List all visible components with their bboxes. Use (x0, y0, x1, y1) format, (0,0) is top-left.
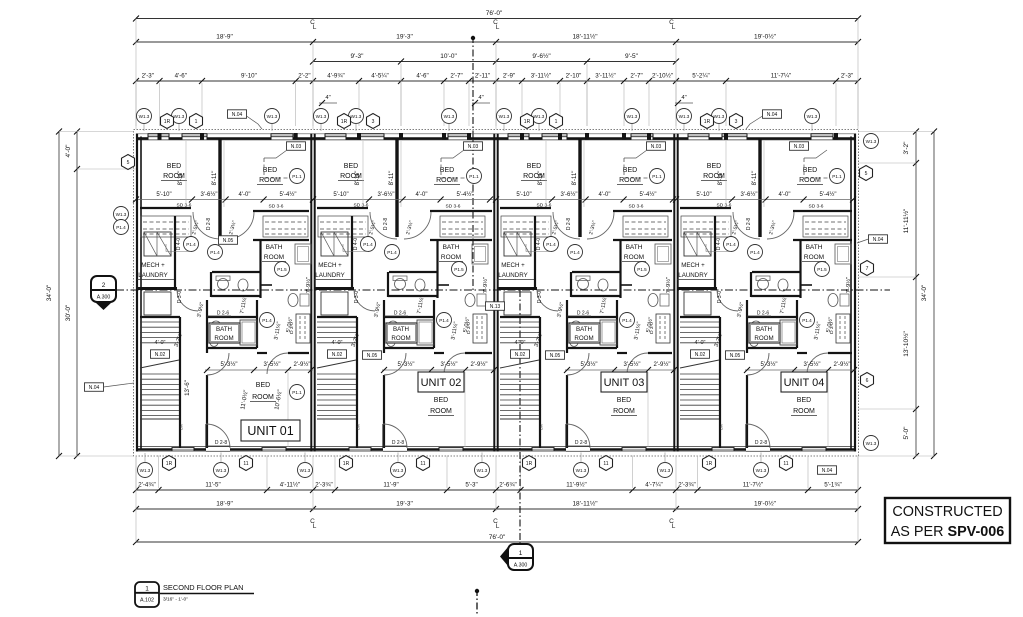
svg-text:34'-0": 34'-0" (921, 284, 928, 301)
svg-text:2'-4¾": 2'-4¾" (138, 482, 155, 489)
svg-text:2'-3¾": 2'-3¾" (678, 482, 695, 489)
svg-text:W1.3: W1.3 (714, 114, 725, 119)
svg-text:N.03: N.03 (468, 144, 479, 150)
svg-text:D 4-0: D 4-0 (716, 238, 722, 250)
svg-text:A.300: A.300 (514, 563, 528, 569)
svg-text:D 3-0: D 3-0 (466, 322, 472, 334)
svg-text:P1.4: P1.4 (750, 250, 760, 255)
svg-text:D 4-0: D 4-0 (353, 238, 359, 250)
svg-text:L: L (672, 523, 676, 530)
svg-text:11'-5": 11'-5" (205, 482, 220, 489)
svg-text:8'-11": 8'-11" (355, 171, 361, 186)
svg-text:4'-0": 4'-0" (416, 192, 428, 198)
svg-text:7'-11½": 7'-11½" (415, 295, 425, 314)
svg-text:N.04: N.04 (767, 112, 778, 118)
svg-text:11'-7¼": 11'-7¼" (771, 73, 791, 80)
svg-text:4'-7¼": 4'-7¼" (645, 482, 662, 489)
svg-text:5'-3½": 5'-3½" (221, 361, 238, 368)
svg-text:P1.1: P1.1 (832, 174, 842, 179)
svg-text:3'-5½": 3'-5½" (441, 361, 458, 368)
svg-text:1R: 1R (341, 119, 348, 125)
svg-text:1R: 1R (526, 461, 533, 467)
svg-text:A.102: A.102 (140, 598, 154, 604)
svg-text:SD 3-6: SD 3-6 (177, 203, 192, 209)
svg-text:13'-6": 13'-6" (184, 380, 191, 396)
svg-text:BATH: BATH (393, 326, 409, 333)
svg-text:MECH +: MECH + (141, 262, 165, 269)
svg-text:2'-7": 2'-7" (450, 73, 462, 80)
svg-text:1R: 1R (164, 119, 171, 125)
svg-text:34'-0": 34'-0" (46, 284, 53, 301)
svg-text:5'-1¾": 5'-1¾" (824, 482, 841, 489)
svg-text:9'-5": 9'-5" (625, 53, 639, 60)
svg-text:D 2-8: D 2-8 (575, 440, 587, 446)
svg-text:DN: DN (720, 424, 724, 430)
svg-text:P1.4: P1.4 (116, 225, 126, 230)
svg-text:5'-10": 5'-10" (516, 192, 531, 198)
svg-text:5'-3½": 5'-3½" (398, 361, 415, 368)
svg-text:W1.3: W1.3 (866, 441, 877, 446)
svg-text:P1.4: P1.4 (802, 318, 812, 323)
svg-text:4'-0": 4'-0" (65, 144, 72, 158)
svg-text:N.02: N.02 (695, 352, 706, 358)
svg-text:P1.4: P1.4 (726, 242, 736, 247)
svg-text:3'-11½": 3'-11½" (812, 321, 822, 340)
svg-text:2'-5¼": 2'-5¼" (191, 220, 201, 235)
svg-text:4'-5¼": 4'-5¼" (371, 73, 388, 80)
svg-text:P1.4: P1.4 (262, 318, 272, 323)
svg-text:3'-11½": 3'-11½" (595, 73, 615, 80)
svg-text:BED: BED (617, 397, 631, 404)
svg-text:8'-11": 8'-11" (752, 171, 758, 186)
svg-text:P1.1: P1.1 (469, 174, 479, 179)
svg-text:2'-9": 2'-9" (503, 73, 515, 80)
svg-text:P1.5: P1.5 (817, 267, 827, 272)
svg-text:W1.3: W1.3 (393, 468, 404, 473)
svg-text:3'-11½": 3'-11½" (272, 321, 282, 340)
svg-text:4'-6": 4'-6" (416, 73, 428, 80)
svg-text:BATH: BATH (216, 326, 232, 333)
svg-text:1R: 1R (166, 461, 173, 467)
svg-text:5'-10": 5'-10" (156, 192, 171, 198)
svg-text:2'-3": 2'-3" (142, 73, 154, 80)
svg-text:W1.3: W1.3 (267, 114, 278, 119)
svg-text:DN: DN (540, 424, 544, 430)
svg-text:N.02: N.02 (332, 352, 343, 358)
svg-text:11: 11 (243, 461, 248, 467)
svg-text:BED: BED (263, 167, 277, 174)
svg-text:6: 6 (866, 378, 869, 384)
svg-text:UNIT 03: UNIT 03 (604, 377, 645, 389)
svg-text:3'-5½": 3'-5½" (804, 361, 821, 368)
svg-text:5'-10": 5'-10" (333, 192, 348, 198)
svg-text:4'-6": 4'-6" (175, 73, 187, 80)
svg-text:BED: BED (707, 163, 721, 170)
svg-text:4": 4" (478, 95, 483, 101)
svg-text:19'-3": 19'-3" (396, 34, 413, 41)
svg-text:D 2-8: D 2-8 (215, 440, 227, 446)
svg-text:W1.3: W1.3 (116, 212, 127, 217)
svg-text:7'-9½": 7'-9½" (845, 277, 852, 293)
svg-text:ROOM: ROOM (804, 254, 824, 261)
svg-text:BED: BED (803, 167, 817, 174)
svg-text:3'-2½": 3'-2½" (173, 331, 185, 348)
svg-text:BATH: BATH (443, 244, 460, 251)
svg-text:BED: BED (797, 397, 811, 404)
svg-text:7'-11½": 7'-11½" (598, 295, 608, 314)
svg-text:D 2-8: D 2-8 (383, 218, 389, 230)
svg-text:2'-9½": 2'-9½" (654, 361, 671, 368)
svg-text:ROOM: ROOM (214, 335, 233, 342)
svg-text:ROOM: ROOM (613, 408, 635, 415)
svg-text:3'-9½": 3'-9½" (555, 301, 565, 318)
svg-text:2'-3¾": 2'-3¾" (315, 482, 332, 489)
svg-text:11'-9": 11'-9" (383, 482, 398, 489)
svg-text:N.02: N.02 (155, 352, 166, 358)
svg-text:19'-3": 19'-3" (396, 501, 413, 508)
svg-text:3/16" - 1'-0": 3/16" - 1'-0" (163, 597, 188, 603)
svg-text:P1.1: P1.1 (292, 390, 302, 395)
svg-text:D 3-0: D 3-0 (829, 322, 835, 334)
svg-text:P1.1: P1.1 (292, 174, 302, 179)
svg-text:11'-9½": 11'-9½" (566, 482, 586, 489)
svg-text:N.04: N.04 (873, 237, 884, 243)
svg-text:P1.5: P1.5 (637, 267, 647, 272)
svg-text:W1.3: W1.3 (444, 114, 455, 119)
svg-text:8'-11": 8'-11" (389, 171, 395, 186)
svg-text:11: 11 (420, 461, 425, 467)
svg-text:4'-0": 4'-0" (779, 192, 791, 198)
svg-text:3: 3 (735, 119, 738, 125)
svg-text:N.03: N.03 (291, 144, 302, 150)
svg-text:SD 3-6: SD 3-6 (446, 204, 461, 210)
svg-text:11: 11 (603, 461, 608, 467)
svg-text:3'-9½": 3'-9½" (195, 301, 205, 318)
svg-text:P1.4: P1.4 (363, 242, 373, 247)
svg-text:W1.3: W1.3 (216, 468, 227, 473)
svg-text:W1.3: W1.3 (174, 114, 185, 119)
svg-text:1R: 1R (706, 461, 713, 467)
svg-text:5'-4½": 5'-4½" (640, 191, 657, 198)
svg-text:N.04: N.04 (822, 468, 833, 474)
svg-text:9'-3": 9'-3" (351, 53, 365, 60)
svg-text:4": 4" (325, 95, 330, 101)
svg-text:DN: DN (357, 424, 361, 430)
svg-text:W1.3: W1.3 (866, 139, 877, 144)
svg-text:N.05: N.05 (367, 353, 378, 359)
svg-text:W1.3: W1.3 (756, 468, 767, 473)
svg-text:76'-0": 76'-0" (486, 10, 503, 17)
svg-text:3'-6½": 3'-6½" (378, 191, 395, 198)
svg-text:SD 3-6: SD 3-6 (809, 204, 824, 210)
svg-text:ROOM: ROOM (793, 408, 815, 415)
svg-text:13'-10½": 13'-10½" (902, 331, 910, 357)
svg-text:L: L (496, 24, 500, 31)
svg-text:MECH +: MECH + (501, 262, 525, 269)
svg-text:P1.4: P1.4 (622, 318, 632, 323)
svg-text:LAUNDRY: LAUNDRY (678, 272, 707, 279)
svg-text:ROOM: ROOM (574, 335, 593, 342)
svg-text:N.03: N.03 (651, 144, 662, 150)
svg-text:P1.5: P1.5 (277, 267, 287, 272)
svg-text:2'-2": 2'-2" (298, 73, 310, 80)
svg-text:W1.3: W1.3 (807, 114, 818, 119)
svg-text:2'-3½": 2'-3½" (227, 220, 237, 236)
svg-text:SD 3-6: SD 3-6 (717, 203, 732, 209)
svg-text:2'-9½": 2'-9½" (834, 361, 851, 368)
svg-text:BED: BED (434, 397, 448, 404)
svg-text:2'-7": 2'-7" (630, 73, 642, 80)
svg-text:2'-3½": 2'-3½" (404, 220, 414, 236)
svg-text:P1.5: P1.5 (454, 267, 464, 272)
svg-text:1: 1 (519, 550, 523, 557)
svg-text:1R: 1R (343, 461, 350, 467)
svg-text:A.300: A.300 (97, 295, 111, 301)
svg-text:W1.3: W1.3 (316, 114, 327, 119)
svg-text:BED: BED (256, 382, 270, 389)
svg-text:BATH: BATH (756, 326, 772, 333)
svg-text:ROOM: ROOM (264, 254, 284, 261)
svg-text:L: L (672, 24, 676, 31)
svg-text:W1.3: W1.3 (140, 468, 151, 473)
svg-text:2'-3½": 2'-3½" (767, 220, 777, 236)
svg-text:3'-2½": 3'-2½" (350, 331, 362, 348)
svg-text:3'-5½": 3'-5½" (264, 361, 281, 368)
svg-text:W1.3: W1.3 (477, 468, 488, 473)
svg-text:D 3-0: D 3-0 (717, 291, 723, 303)
svg-text:P1.4: P1.4 (570, 250, 580, 255)
svg-text:N.05: N.05 (223, 238, 234, 244)
svg-text:P1.1: P1.1 (652, 174, 662, 179)
svg-text:1R: 1R (704, 119, 711, 125)
svg-text:2'-5¼": 2'-5¼" (731, 220, 741, 235)
svg-text:18'-9": 18'-9" (216, 34, 233, 41)
svg-text:18'-11½": 18'-11½" (572, 33, 598, 41)
svg-text:3'-6½": 3'-6½" (741, 191, 758, 198)
svg-text:2: 2 (102, 282, 106, 289)
svg-text:4'-11½": 4'-11½" (280, 482, 300, 489)
svg-text:11'-11½": 11'-11½" (902, 208, 910, 233)
svg-text:7'-9½": 7'-9½" (305, 277, 312, 293)
svg-text:UNIT 04: UNIT 04 (784, 377, 825, 389)
svg-text:D 3-0: D 3-0 (354, 291, 360, 303)
svg-text:1: 1 (195, 119, 198, 125)
svg-text:3'-11½": 3'-11½" (632, 321, 642, 340)
svg-text:8'-11": 8'-11" (212, 171, 218, 186)
svg-text:W1.3: W1.3 (679, 114, 690, 119)
svg-text:LAUNDRY: LAUNDRY (498, 272, 527, 279)
svg-text:L: L (313, 523, 317, 530)
svg-text:4'-0": 4'-0" (695, 340, 706, 346)
svg-text:1R: 1R (524, 119, 531, 125)
svg-text:3'-11½": 3'-11½" (449, 321, 459, 340)
svg-text:10'-0": 10'-0" (440, 53, 457, 60)
svg-text:11'-0½": 11'-0½" (239, 389, 249, 410)
svg-text:L: L (496, 523, 500, 530)
svg-text:5'-4½": 5'-4½" (280, 191, 297, 198)
svg-text:5'-3": 5'-3" (465, 482, 477, 489)
svg-text:2'-10½": 2'-10½" (652, 73, 673, 80)
svg-text:N.03: N.03 (794, 144, 805, 150)
svg-text:4'-0": 4'-0" (155, 340, 166, 346)
svg-text:3'-9½": 3'-9½" (735, 301, 745, 318)
svg-text:4'-9¾": 4'-9¾" (327, 73, 344, 80)
svg-text:SD 3-6: SD 3-6 (354, 203, 369, 209)
svg-text:2'-9½": 2'-9½" (294, 361, 311, 368)
svg-text:11: 11 (783, 461, 788, 467)
svg-text:5: 5 (865, 171, 868, 177)
svg-text:2'-6¾": 2'-6¾" (499, 482, 516, 489)
svg-text:9'-6½": 9'-6½" (532, 52, 551, 60)
svg-text:4'-0": 4'-0" (515, 340, 526, 346)
svg-text:N.04: N.04 (89, 385, 100, 391)
svg-text:D 2-8: D 2-8 (746, 218, 752, 230)
svg-text:ROOM: ROOM (624, 254, 644, 261)
svg-text:4'-0": 4'-0" (332, 340, 343, 346)
svg-text:W1.3: W1.3 (534, 114, 545, 119)
svg-text:2'-3": 2'-3" (841, 73, 853, 80)
svg-text:SECOND FLOOR PLAN: SECOND FLOOR PLAN (163, 583, 244, 592)
svg-text:3'-9½": 3'-9½" (372, 301, 382, 318)
svg-text:7'-9½": 7'-9½" (665, 277, 672, 293)
svg-text:UNIT 01: UNIT 01 (247, 424, 293, 438)
svg-text:3'-5½": 3'-5½" (624, 361, 641, 368)
svg-text:7'-11½": 7'-11½" (238, 295, 248, 314)
svg-text:5'-2¼": 5'-2¼" (692, 73, 709, 80)
svg-text:LAUNDRY: LAUNDRY (138, 272, 167, 279)
svg-text:D 3-0: D 3-0 (649, 322, 655, 334)
svg-text:5'-3½": 5'-3½" (761, 361, 778, 368)
svg-text:8'-11": 8'-11" (178, 171, 184, 186)
svg-text:7'-11½": 7'-11½" (778, 295, 788, 314)
svg-text:BED: BED (527, 163, 541, 170)
svg-text:2'-5¼": 2'-5¼" (551, 220, 561, 235)
svg-text:W1.3: W1.3 (576, 468, 587, 473)
svg-text:MECH +: MECH + (318, 262, 342, 269)
svg-text:2'-5¼": 2'-5¼" (368, 220, 378, 235)
svg-text:19'-0½": 19'-0½" (754, 500, 777, 508)
svg-text:76'-0": 76'-0" (489, 534, 506, 541)
svg-text:3'-2½": 3'-2½" (533, 331, 545, 348)
svg-text:W1.3: W1.3 (660, 468, 671, 473)
svg-text:MECH +: MECH + (681, 262, 705, 269)
svg-text:7: 7 (866, 266, 869, 272)
svg-text:19'-0½": 19'-0½" (754, 33, 777, 41)
svg-text:ROOM: ROOM (441, 254, 461, 261)
svg-text:BATH: BATH (266, 244, 283, 251)
svg-text:D 2-8: D 2-8 (755, 440, 767, 446)
svg-text:ROOM: ROOM (430, 408, 452, 415)
svg-text:3'-2": 3'-2" (903, 141, 910, 155)
svg-text:2'-10": 2'-10" (566, 73, 582, 80)
svg-text:BED: BED (623, 167, 637, 174)
svg-text:5'-10": 5'-10" (696, 192, 711, 198)
svg-text:BATH: BATH (626, 244, 643, 251)
svg-text:W1.3: W1.3 (627, 114, 638, 119)
svg-text:SD 3-6: SD 3-6 (269, 204, 284, 210)
svg-text:4": 4" (681, 95, 686, 101)
svg-text:BED: BED (167, 163, 181, 170)
svg-text:W1.3: W1.3 (139, 114, 150, 119)
svg-text:N.05: N.05 (550, 353, 561, 359)
svg-text:L: L (313, 24, 317, 31)
svg-text:BED: BED (344, 163, 358, 170)
svg-text:8'-11": 8'-11" (718, 171, 724, 186)
svg-text:3'-6½": 3'-6½" (201, 191, 218, 198)
svg-text:P1.4: P1.4 (439, 318, 449, 323)
svg-text:LAUNDRY: LAUNDRY (315, 272, 344, 279)
svg-text:N.02: N.02 (515, 352, 526, 358)
svg-text:11'-7½": 11'-7½" (743, 482, 763, 489)
svg-text:7'-9½": 7'-9½" (482, 277, 489, 293)
svg-text:AS PER SPV-006: AS PER SPV-006 (891, 524, 1005, 540)
svg-text:SD 3-6: SD 3-6 (537, 203, 552, 209)
svg-text:N.13: N.13 (490, 304, 501, 310)
svg-text:UNIT 02: UNIT 02 (421, 377, 462, 389)
svg-text:D 4-0: D 4-0 (176, 238, 182, 250)
svg-text:2'-11": 2'-11" (475, 73, 490, 80)
svg-text:W1.3: W1.3 (351, 114, 362, 119)
svg-text:ROOM: ROOM (391, 335, 410, 342)
svg-text:3'-2½": 3'-2½" (713, 331, 725, 348)
svg-text:3'-11½": 3'-11½" (531, 73, 551, 80)
svg-text:D 3-0: D 3-0 (537, 291, 543, 303)
svg-text:BED: BED (440, 167, 454, 174)
svg-text:D 4-0: D 4-0 (536, 238, 542, 250)
svg-text:5'-4½": 5'-4½" (820, 191, 837, 198)
svg-text:18'-9": 18'-9" (216, 501, 233, 508)
svg-text:BATH: BATH (806, 244, 823, 251)
svg-text:4'-0": 4'-0" (599, 192, 611, 198)
svg-text:D 2-8: D 2-8 (206, 218, 212, 230)
svg-text:W1.3: W1.3 (499, 114, 510, 119)
svg-text:1: 1 (555, 119, 558, 125)
svg-text:8'-11": 8'-11" (572, 171, 578, 186)
svg-text:5'-0": 5'-0" (903, 426, 910, 440)
svg-text:3'-6½": 3'-6½" (561, 191, 578, 198)
svg-text:W1.3: W1.3 (300, 468, 311, 473)
svg-text:ROOM: ROOM (754, 335, 773, 342)
svg-text:P1.4: P1.4 (546, 242, 556, 247)
svg-text:D 3-0: D 3-0 (177, 291, 183, 303)
svg-text:P1.4: P1.4 (210, 250, 220, 255)
svg-text:3: 3 (372, 119, 375, 125)
svg-text:8'-11": 8'-11" (538, 171, 544, 186)
svg-text:N.04: N.04 (232, 112, 243, 118)
svg-text:CONSTRUCTED: CONSTRUCTED (892, 504, 1002, 520)
svg-text:1: 1 (145, 586, 149, 593)
svg-text:D 3-0: D 3-0 (289, 322, 295, 334)
svg-text:DN: DN (180, 424, 184, 430)
svg-text:P1.4: P1.4 (186, 242, 196, 247)
svg-text:5'-3½": 5'-3½" (581, 361, 598, 368)
svg-text:5: 5 (127, 160, 130, 166)
svg-text:5'-4½": 5'-4½" (457, 191, 474, 198)
svg-text:D 2-8: D 2-8 (566, 218, 572, 230)
svg-text:2'-3½": 2'-3½" (587, 220, 597, 236)
svg-text:9'-10": 9'-10" (241, 73, 257, 80)
svg-text:10'-6½": 10'-6½" (273, 389, 283, 410)
svg-text:ROOM: ROOM (252, 394, 274, 401)
svg-text:SD 3-6: SD 3-6 (629, 204, 644, 210)
svg-text:BATH: BATH (576, 326, 592, 333)
svg-text:30'-0": 30'-0" (65, 304, 72, 321)
svg-text:4'-0": 4'-0" (239, 192, 251, 198)
svg-text:D 2-8: D 2-8 (392, 440, 404, 446)
svg-text:18'-11½": 18'-11½" (572, 500, 598, 508)
svg-text:P1.4: P1.4 (387, 250, 397, 255)
svg-text:2'-9½": 2'-9½" (471, 361, 488, 368)
